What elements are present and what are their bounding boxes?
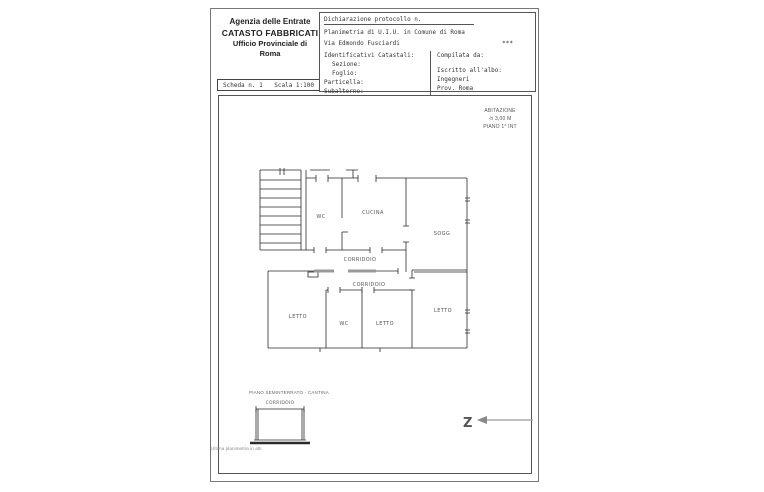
unit-annotation: ABITAZIONE -h 3,00 M PIANO 1° INT: [472, 107, 528, 131]
agency-header: Agenzia delle Entrate CATASTO FABBRICATI…: [221, 17, 319, 77]
door-thresholds: [314, 270, 376, 273]
scheda-box: Scheda n. 1 Scala 1:100: [217, 79, 320, 91]
declaration-title: Dichiarazione protocollo n.: [324, 16, 474, 25]
annotation-line2: -h 3,00 M: [472, 115, 528, 123]
address-note: ***: [502, 40, 513, 47]
address-row: Via Edmondo Fusciardi ***: [324, 40, 531, 47]
footnote: Ultima planimetria in atti: [211, 446, 262, 451]
basement-room-label: CORRIDOIO: [266, 400, 295, 406]
agency-line4: Roma: [221, 49, 319, 59]
room-label-letto-right: LETTO: [434, 308, 452, 314]
declaration-columns: Identificativi Catastali: Sezione: Fogli…: [320, 51, 535, 95]
field-compilata: Compilata da:: [437, 51, 535, 60]
annotation-line3: PIANO 1° INT: [472, 123, 528, 131]
annotation-line1: ABITAZIONE: [472, 107, 528, 115]
floor-plan: WC CUCINA SOGG CORRIDOIO CORRIDOIO LETTO…: [258, 168, 472, 354]
field-albo: Ingegneri: [437, 75, 535, 84]
scale-value: Scala 1:100: [274, 82, 314, 89]
field-prov: Prov. Roma: [437, 84, 535, 93]
catastali-title: Identificativi Catastali:: [324, 51, 430, 60]
north-symbol: Z: [463, 416, 472, 431]
field-subalterno: Subalterno:: [324, 87, 430, 96]
room-label-cucina: CUCINA: [362, 210, 384, 216]
agency-line2: CATASTO FABBRICATI: [221, 28, 319, 39]
room-label-letto-mid: LETTO: [376, 321, 394, 327]
room-label-wc-bottom: WC: [339, 321, 348, 327]
basement-walls: [254, 406, 306, 440]
room-label-letto-left: LETTO: [289, 314, 307, 320]
north-arrow: Z: [461, 411, 535, 433]
compilata-column: Compilata da: Iscritto all'albo: Ingegne…: [430, 51, 535, 95]
planimetria-line: Planimetria di U.I.U. in Comune di Roma: [324, 29, 531, 36]
room-label-corridoio-2: CORRIDOIO: [353, 282, 386, 288]
address-text: Via Edmondo Fusciardi: [324, 40, 400, 47]
field-particella: Particella:: [324, 78, 430, 87]
catastali-column: Identificativi Catastali: Sezione: Fogli…: [320, 51, 430, 95]
north-arrow-head: [477, 416, 487, 424]
basement-title: PIANO SEMINTERRATO - CANTINA: [249, 390, 329, 395]
declaration-box: Dichiarazione protocollo n. Planimetria …: [319, 12, 536, 92]
room-label-wc-top: WC: [316, 214, 325, 220]
field-iscritto: Iscritto all'albo:: [437, 66, 535, 75]
room-label-sogg: SOGG: [434, 231, 450, 237]
agency-line3: Ufficio Provinciale di: [221, 39, 319, 49]
room-label-corridoio-1: CORRIDOIO: [344, 257, 377, 263]
field-sezione: Sezione:: [324, 60, 430, 69]
basement-plan: CORRIDOIO: [246, 396, 314, 448]
scheda-number: Scheda n. 1: [223, 82, 263, 89]
field-foglio: Foglio:: [324, 69, 430, 78]
agency-line1: Agenzia delle Entrate: [221, 17, 319, 28]
